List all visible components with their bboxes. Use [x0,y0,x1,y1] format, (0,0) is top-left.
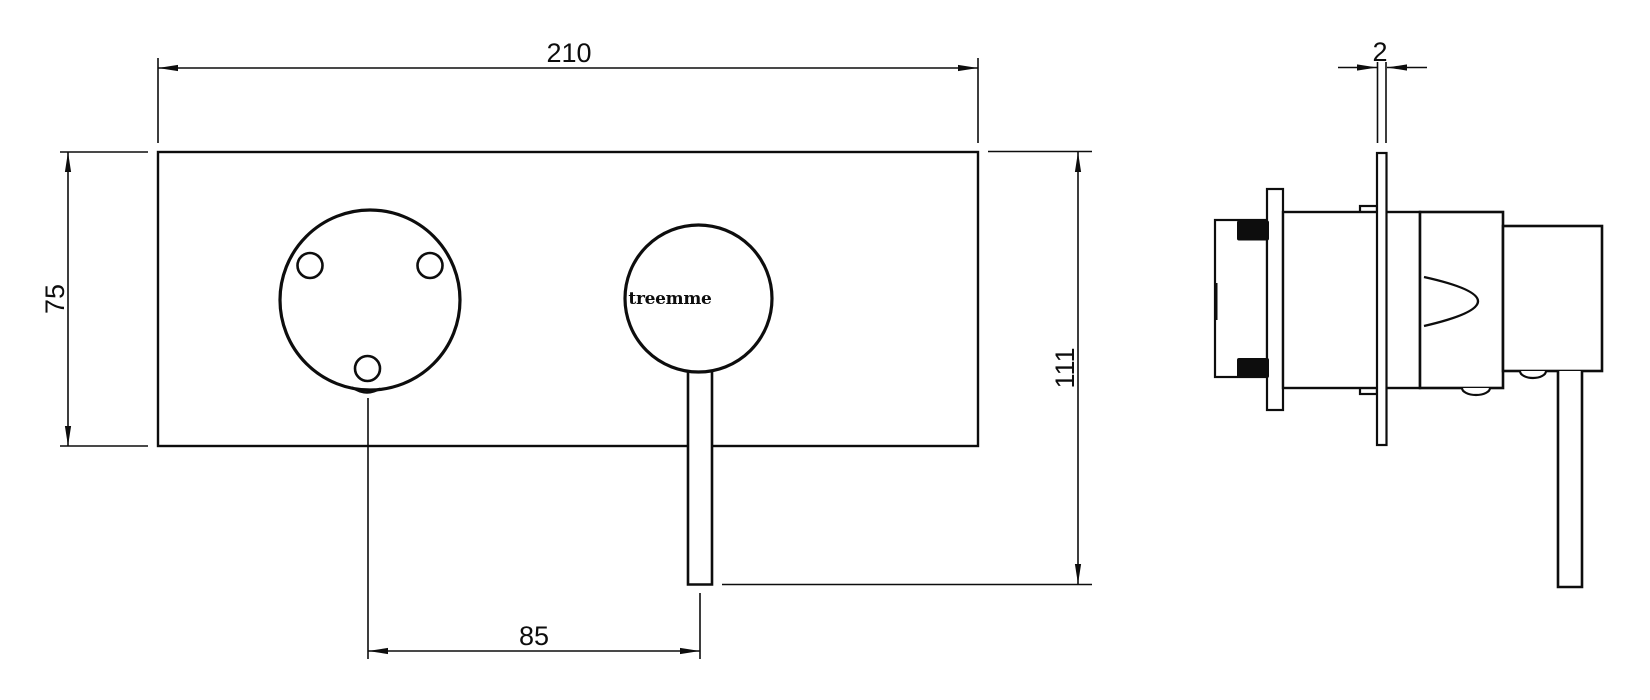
dim-label-axis-spacing: 85 [519,621,549,651]
dimension-plate-width: 210 [158,38,978,143]
brand-logo-text: treemme [628,289,712,309]
fixing-screw-bottom [1237,358,1269,378]
thermostat-dial [280,210,460,392]
set-screw-bump-knob [1462,388,1490,395]
dim-label-plate-thickness: 2 [1372,37,1387,67]
drawing-canvas: treemme 210 75 111 85 [0,0,1650,700]
dim-label-overall-height: 111 [1050,347,1080,388]
dim-label-plate-width: 210 [546,38,591,68]
dim-label-plate-height: 75 [40,284,70,314]
dimension-plate-height: 75 [40,152,148,446]
set-screw-bump-lever [1520,371,1546,378]
cartridge-housing [1283,212,1420,388]
technical-drawing: treemme 210 75 111 85 [0,0,1650,700]
handle-base-side [1420,212,1503,388]
lever-bar-front [688,370,712,585]
dial-hole-bottom [355,356,380,381]
front-view: treemme 210 75 111 85 [40,38,1092,659]
wall-plate-side [1377,153,1387,445]
fixing-screw-top [1237,221,1269,241]
side-view: 2 [1215,37,1602,587]
dimension-plate-thickness: 2 [1338,37,1427,143]
dial-hole-upper-right [418,253,443,278]
lever-arm-side [1503,226,1602,371]
lever-rod-side [1558,371,1582,587]
rough-in-valve-body [1215,220,1267,377]
mounting-bracket [1267,189,1283,410]
dial-hole-upper-left [298,253,323,278]
